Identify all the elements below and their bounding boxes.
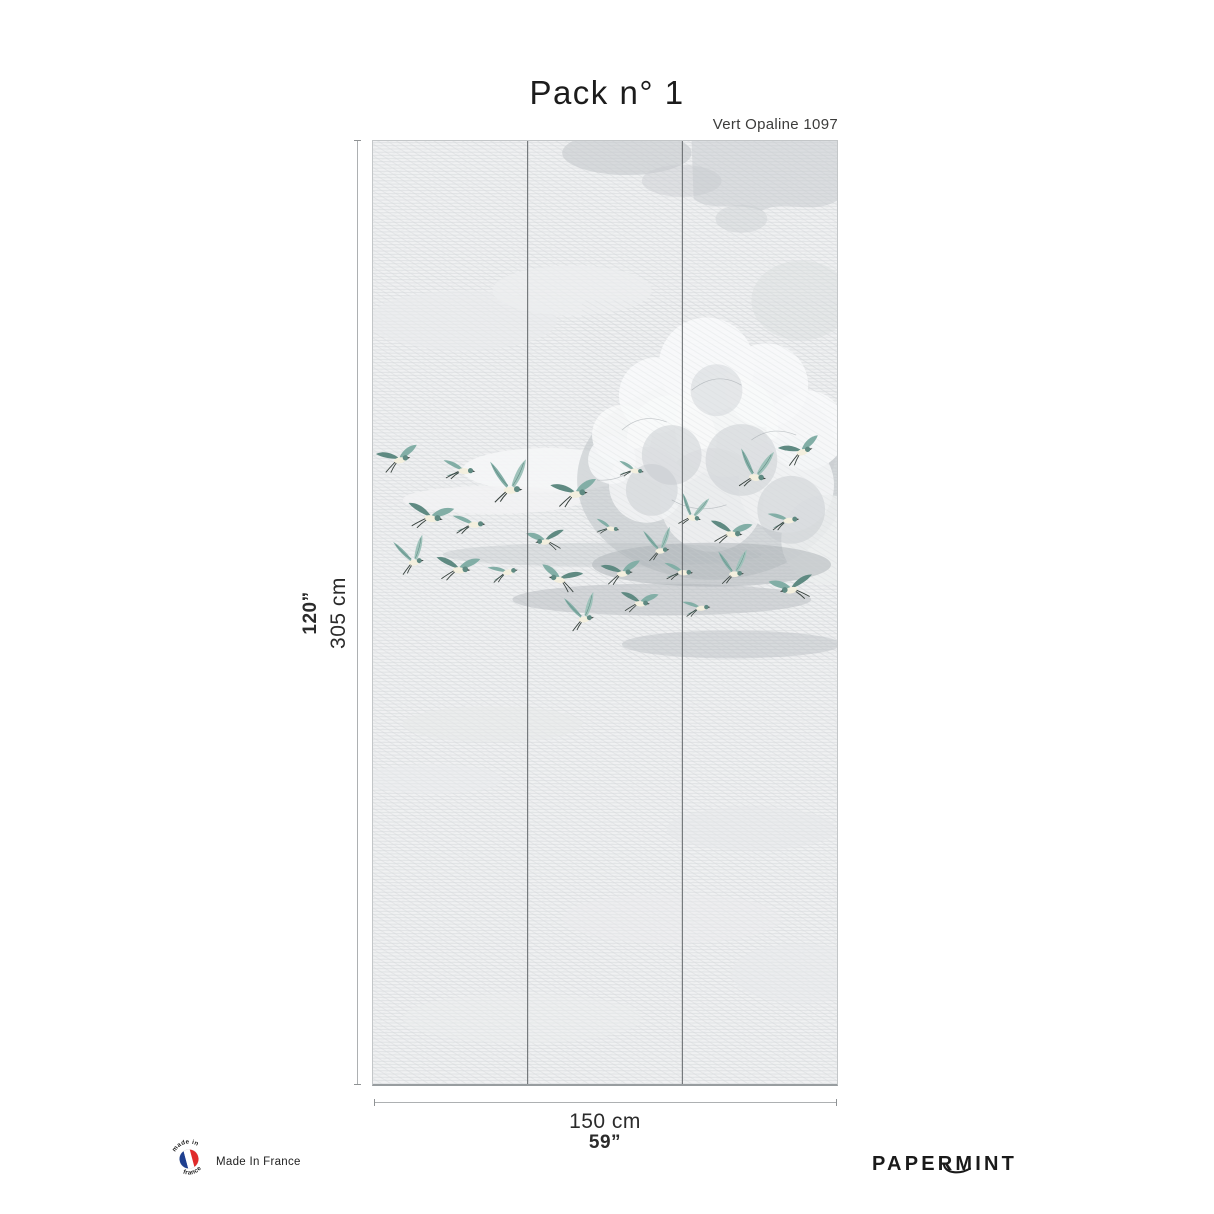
width-dimension-line <box>374 1102 837 1103</box>
colorway-label: Vert Opaline 1097 <box>713 116 838 133</box>
made-in-france-label: Made In France <box>216 1156 301 1168</box>
height-cm-label: 305 cm <box>327 577 351 649</box>
width-inches-label: 59” <box>505 1132 705 1154</box>
wallpaper-art <box>373 141 837 1084</box>
width-dimension-tick-right <box>836 1099 837 1106</box>
made-in-france-badge-icon: made in france <box>161 1131 217 1187</box>
width-dimension-tick-left <box>374 1099 375 1106</box>
wallpaper-panel <box>372 140 838 1086</box>
width-cm-label: 150 cm <box>505 1110 705 1134</box>
height-dimension-tick-top <box>354 140 361 141</box>
height-dimension-line <box>357 141 358 1085</box>
page-title: Pack n° 1 <box>0 74 1214 112</box>
papermint-logo: PAPERMINT <box>872 1149 1034 1177</box>
height-dimension-tick-bottom <box>354 1084 361 1085</box>
height-inches-label: 120” <box>300 591 322 634</box>
brand-wordmark: PAPERMINT <box>872 1153 1017 1175</box>
